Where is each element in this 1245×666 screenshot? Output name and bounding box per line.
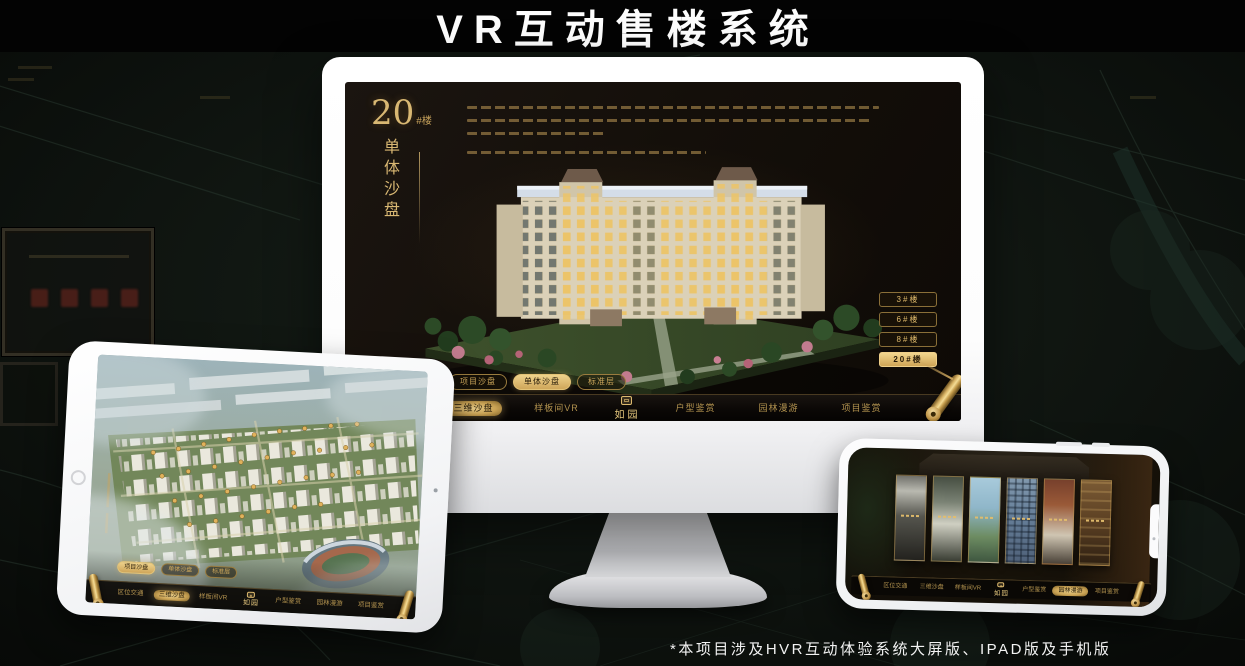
- phone-notch: [1149, 504, 1159, 558]
- nav-item-garden-roam[interactable]: 园林漫游: [309, 599, 351, 609]
- nav-item-garden-roam[interactable]: 园林漫游: [737, 403, 820, 413]
- nav-item-floorplans[interactable]: 户型鉴赏: [1016, 587, 1052, 594]
- tab-project-sandbox[interactable]: 项目沙盘: [117, 561, 156, 575]
- stage: VR互动售楼系统 20#楼 单体沙盘: [0, 0, 1245, 666]
- building-subtitle: 单体沙盘: [378, 138, 402, 250]
- nav-item-location[interactable]: 区位交通: [110, 589, 152, 599]
- floor-button-8[interactable]: 8#楼: [879, 332, 937, 347]
- scroll-menu-icon[interactable]: [857, 573, 870, 598]
- monitor-stand: [585, 511, 731, 577]
- phone-device: 区位交通 三维沙盘 样板间VR 如园 户型鉴赏 园林漫游 项目鉴赏: [836, 438, 1170, 617]
- nav-item-garden-roam[interactable]: 园林漫游: [1052, 586, 1089, 597]
- seal-icon: [998, 582, 1005, 587]
- nav-item-project-gallery[interactable]: 项目鉴赏: [1089, 589, 1125, 596]
- tab-standard-floor[interactable]: 标准层: [577, 374, 626, 390]
- nav-item-project-gallery[interactable]: 项目鉴赏: [820, 403, 903, 413]
- building-number: 20: [371, 93, 414, 133]
- camera-icon: [434, 488, 438, 492]
- nav-item-3d-sandbox[interactable]: 三维沙盘: [913, 584, 949, 591]
- nav-item-showroom-vr[interactable]: 样板间VR: [192, 593, 234, 603]
- nav-item-project-gallery[interactable]: 项目鉴赏: [350, 601, 392, 611]
- page-title: VR互动售楼系统: [425, 0, 820, 55]
- brand-logo: 如园: [598, 396, 654, 421]
- gallery-panel[interactable]: [1005, 477, 1038, 564]
- phone-side-button: [1092, 443, 1110, 447]
- gold-divider: [419, 152, 420, 244]
- tablet-screen: 项目沙盘 单体沙盘 标准层 区位交通 三维沙盘 样板间VR 如园 户型鉴赏 园林…: [85, 354, 428, 619]
- camera-icon: [1152, 538, 1155, 541]
- panorama-gallery: [890, 474, 1116, 566]
- gallery-panel[interactable]: [1079, 479, 1112, 566]
- building-title-block: 20#楼 单体沙盘: [371, 96, 432, 250]
- scroll-menu-icon[interactable]: [927, 372, 961, 420]
- building-3d-viewport[interactable]: [385, 126, 915, 416]
- gallery-panel[interactable]: [931, 475, 964, 562]
- page-header: VR互动售楼系统: [0, 0, 1245, 52]
- gallery-panel[interactable]: [1042, 478, 1075, 565]
- nav-item-showroom-vr[interactable]: 样板间VR: [515, 403, 598, 413]
- nav-item-3d-sandbox[interactable]: 三维沙盘: [151, 589, 193, 602]
- footnote-text: *本项目涉及HVR互动体验系统大屏版、IPAD版及手机版: [670, 638, 1111, 659]
- floor-button-group: 3#楼 6#楼 8#楼 20#楼: [879, 292, 937, 367]
- nav-item-showroom-vr[interactable]: 样板间VR: [950, 585, 986, 592]
- home-button[interactable]: [70, 470, 86, 486]
- brand-logo: 如园: [233, 591, 268, 609]
- phone-screen: 区位交通 三维沙盘 样板间VR 如园 户型鉴赏 园林漫游 项目鉴赏: [845, 447, 1161, 607]
- gallery-panel[interactable]: [968, 476, 1001, 563]
- nav-item-floorplans[interactable]: 户型鉴赏: [654, 403, 737, 413]
- seal-icon: [247, 592, 255, 598]
- nav-item-floorplans[interactable]: 户型鉴赏: [267, 597, 309, 607]
- background-plaque: [2, 228, 154, 356]
- nav-item-location[interactable]: 区位交通: [877, 583, 913, 590]
- phone-side-button: [1056, 442, 1082, 447]
- tab-single-sandbox[interactable]: 单体沙盘: [513, 374, 571, 390]
- seal-icon: [621, 396, 632, 405]
- tablet-device: 项目沙盘 单体沙盘 标准层 区位交通 三维沙盘 样板间VR 如园 户型鉴赏 园林…: [56, 340, 456, 634]
- description-text-lines: [467, 106, 879, 164]
- tab-project-sandbox[interactable]: 项目沙盘: [449, 374, 507, 390]
- floor-button-6[interactable]: 6#楼: [879, 312, 937, 327]
- gallery-panel[interactable]: [894, 474, 927, 561]
- brand-logo: 如园: [986, 581, 1016, 597]
- background-frame: [0, 362, 58, 426]
- scroll-menu-icon[interactable]: [1132, 580, 1146, 605]
- tab-standard-floor[interactable]: 标准层: [205, 565, 238, 579]
- floor-button-3[interactable]: 3#楼: [879, 292, 937, 307]
- sandbox-sub-tabs: 项目沙盘 单体沙盘 标准层: [449, 374, 626, 390]
- tab-single-sandbox[interactable]: 单体沙盘: [161, 563, 200, 577]
- aerial-sandbox-viewport[interactable]: [85, 354, 428, 619]
